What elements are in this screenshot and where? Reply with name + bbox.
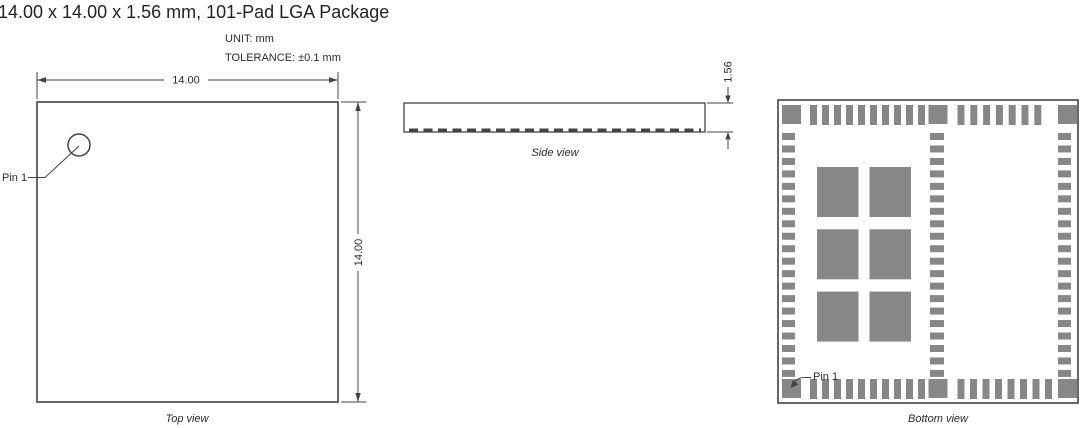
edge-pad-bottom xyxy=(958,379,965,399)
edge-pad-left xyxy=(782,333,795,340)
edge-pad-middle xyxy=(930,283,944,290)
edge-pad-bottom xyxy=(970,379,977,399)
corner-pad xyxy=(782,105,801,124)
edge-pad-top xyxy=(882,105,889,125)
edge-pad-middle xyxy=(930,308,944,315)
edge-pad-right xyxy=(1058,208,1071,215)
drawing-canvas: 14.00 x 14.00 x 1.56 mm, 101-Pad LGA Pac… xyxy=(0,0,1080,428)
edge-pad-right xyxy=(1058,370,1071,377)
center-pad xyxy=(870,292,912,342)
edge-pad-top xyxy=(996,105,1003,125)
edge-pad-left xyxy=(782,183,795,190)
edge-pad-left xyxy=(782,195,795,202)
bottom-view xyxy=(778,100,1078,403)
arrowhead-down xyxy=(355,393,360,402)
edge-pad-top xyxy=(894,105,901,125)
edge-pad-top xyxy=(810,105,817,125)
edge-pad-middle xyxy=(930,133,944,140)
top-height-dim-text: 14.00 xyxy=(353,239,365,267)
edge-pad-right xyxy=(1058,270,1071,277)
edge-pad-right xyxy=(1058,183,1071,190)
edge-pad-left xyxy=(782,233,795,240)
edge-pad-bottom xyxy=(882,379,889,399)
edge-pad-left xyxy=(782,295,795,302)
edge-pad-bottom xyxy=(858,379,865,399)
edge-pad-left xyxy=(782,270,795,277)
edge-pad-right xyxy=(1058,333,1071,340)
edge-pad-right xyxy=(1058,158,1071,165)
edge-pad-left xyxy=(782,133,795,140)
edge-pad-top xyxy=(1022,105,1029,125)
edge-pad-left xyxy=(782,345,795,352)
mid-edge-pad xyxy=(929,105,948,124)
bottom-view-caption: Bottom view xyxy=(908,413,968,425)
corner-pad xyxy=(782,379,801,398)
arrowhead-up xyxy=(725,132,730,140)
corner-pad xyxy=(1058,105,1077,124)
side-view: 1.56 xyxy=(404,61,735,149)
arrowhead-up xyxy=(355,102,360,111)
edge-pad-left xyxy=(782,370,795,377)
side-view-caption: Side view xyxy=(531,147,578,159)
edge-pad-bottom xyxy=(995,379,1002,399)
edge-pad-middle xyxy=(930,158,944,165)
top-view-outline xyxy=(37,102,338,402)
top-view-caption: Top view xyxy=(165,413,208,425)
edge-pad-left xyxy=(782,258,795,265)
edge-pad-middle xyxy=(930,357,944,364)
edge-pad-middle xyxy=(930,345,944,352)
edge-pad-top xyxy=(846,105,853,125)
edge-pad-left xyxy=(782,220,795,227)
edge-pad-bottom xyxy=(1020,379,1027,399)
edge-pad-left xyxy=(782,320,795,327)
edge-pad-right xyxy=(1058,195,1071,202)
edge-pad-middle xyxy=(930,170,944,177)
edge-pad-top xyxy=(983,105,990,125)
edge-pad-bottom xyxy=(846,379,853,399)
center-pad xyxy=(870,229,912,279)
side-view-outline xyxy=(404,103,705,132)
top-view-width-dimension: 14.00 xyxy=(37,72,338,99)
edge-pad-left xyxy=(782,208,795,215)
edge-pad-middle xyxy=(930,258,944,265)
edge-pad-middle xyxy=(930,333,944,340)
edge-pad-middle xyxy=(930,220,944,227)
edge-pad-left xyxy=(782,170,795,177)
edge-pad-bottom xyxy=(1033,379,1040,399)
corner-pad xyxy=(1058,379,1077,398)
edge-pad-bottom xyxy=(918,379,925,399)
edge-pad-left xyxy=(782,357,795,364)
edge-pad-right xyxy=(1058,170,1071,177)
bottom-view-pin1-label: Pin 1 xyxy=(813,371,838,383)
center-pad xyxy=(817,167,859,217)
top-width-dim-text: 14.00 xyxy=(172,75,200,87)
edge-pad-top xyxy=(822,105,829,125)
edge-pad-middle xyxy=(930,295,944,302)
edge-pad-right xyxy=(1058,295,1071,302)
edge-pad-top xyxy=(906,105,913,125)
edge-pad-middle xyxy=(930,370,944,377)
edge-pad-bottom xyxy=(983,379,990,399)
center-pad xyxy=(870,167,912,217)
arrowhead-left xyxy=(37,77,46,82)
edge-pad-left xyxy=(782,308,795,315)
arrowhead-down xyxy=(725,96,730,104)
edge-pad-bottom xyxy=(870,379,877,399)
center-pad xyxy=(817,229,859,279)
thickness-dim-text: 1.56 xyxy=(723,61,735,82)
edge-pad-right xyxy=(1058,308,1071,315)
edge-pad-right xyxy=(1058,345,1071,352)
edge-pad-bottom xyxy=(906,379,913,399)
top-view: 14.00 14.00 xyxy=(28,72,366,402)
edge-pad-middle xyxy=(930,320,944,327)
edge-pad-top xyxy=(1034,105,1041,125)
edge-pad-right xyxy=(1058,320,1071,327)
arrowhead-right xyxy=(329,77,338,82)
edge-pad-left xyxy=(782,283,795,290)
edge-pad-middle xyxy=(930,183,944,190)
edge-pad-top xyxy=(958,105,965,125)
edge-pad-right xyxy=(1058,357,1071,364)
edge-pad-left xyxy=(782,245,795,252)
edge-pad-middle xyxy=(930,233,944,240)
edge-pad-middle xyxy=(930,145,944,152)
edge-pad-top xyxy=(918,105,925,125)
edge-pad-top xyxy=(1009,105,1016,125)
edge-pad-middle xyxy=(930,270,944,277)
edge-pad-right xyxy=(1058,145,1071,152)
side-view-thickness-dimension: 1.56 xyxy=(707,61,735,149)
edge-pad-left xyxy=(782,158,795,165)
edge-pad-top xyxy=(970,105,977,125)
edge-pad-middle xyxy=(930,245,944,252)
edge-pad-right xyxy=(1058,220,1071,227)
edge-pad-right xyxy=(1058,258,1071,265)
top-view-height-dimension: 14.00 xyxy=(341,102,366,402)
edge-pad-right xyxy=(1058,233,1071,240)
edge-pad-middle xyxy=(930,208,944,215)
edge-pad-right xyxy=(1058,133,1071,140)
edge-pad-bottom xyxy=(1008,379,1015,399)
edge-pad-right xyxy=(1058,283,1071,290)
drawing-layer: 14.00 14.00 xyxy=(0,0,1080,428)
edge-pad-top xyxy=(858,105,865,125)
edge-pad-middle xyxy=(930,195,944,202)
edge-pad-top xyxy=(834,105,841,125)
edge-pad-top xyxy=(870,105,877,125)
center-pad xyxy=(817,292,859,342)
edge-pad-right xyxy=(1058,245,1071,252)
mid-edge-pad xyxy=(929,379,948,398)
edge-pad-bottom xyxy=(1045,379,1052,399)
top-view-pin1-label: Pin 1 xyxy=(2,172,27,184)
edge-pad-bottom xyxy=(894,379,901,399)
edge-pad-left xyxy=(782,145,795,152)
